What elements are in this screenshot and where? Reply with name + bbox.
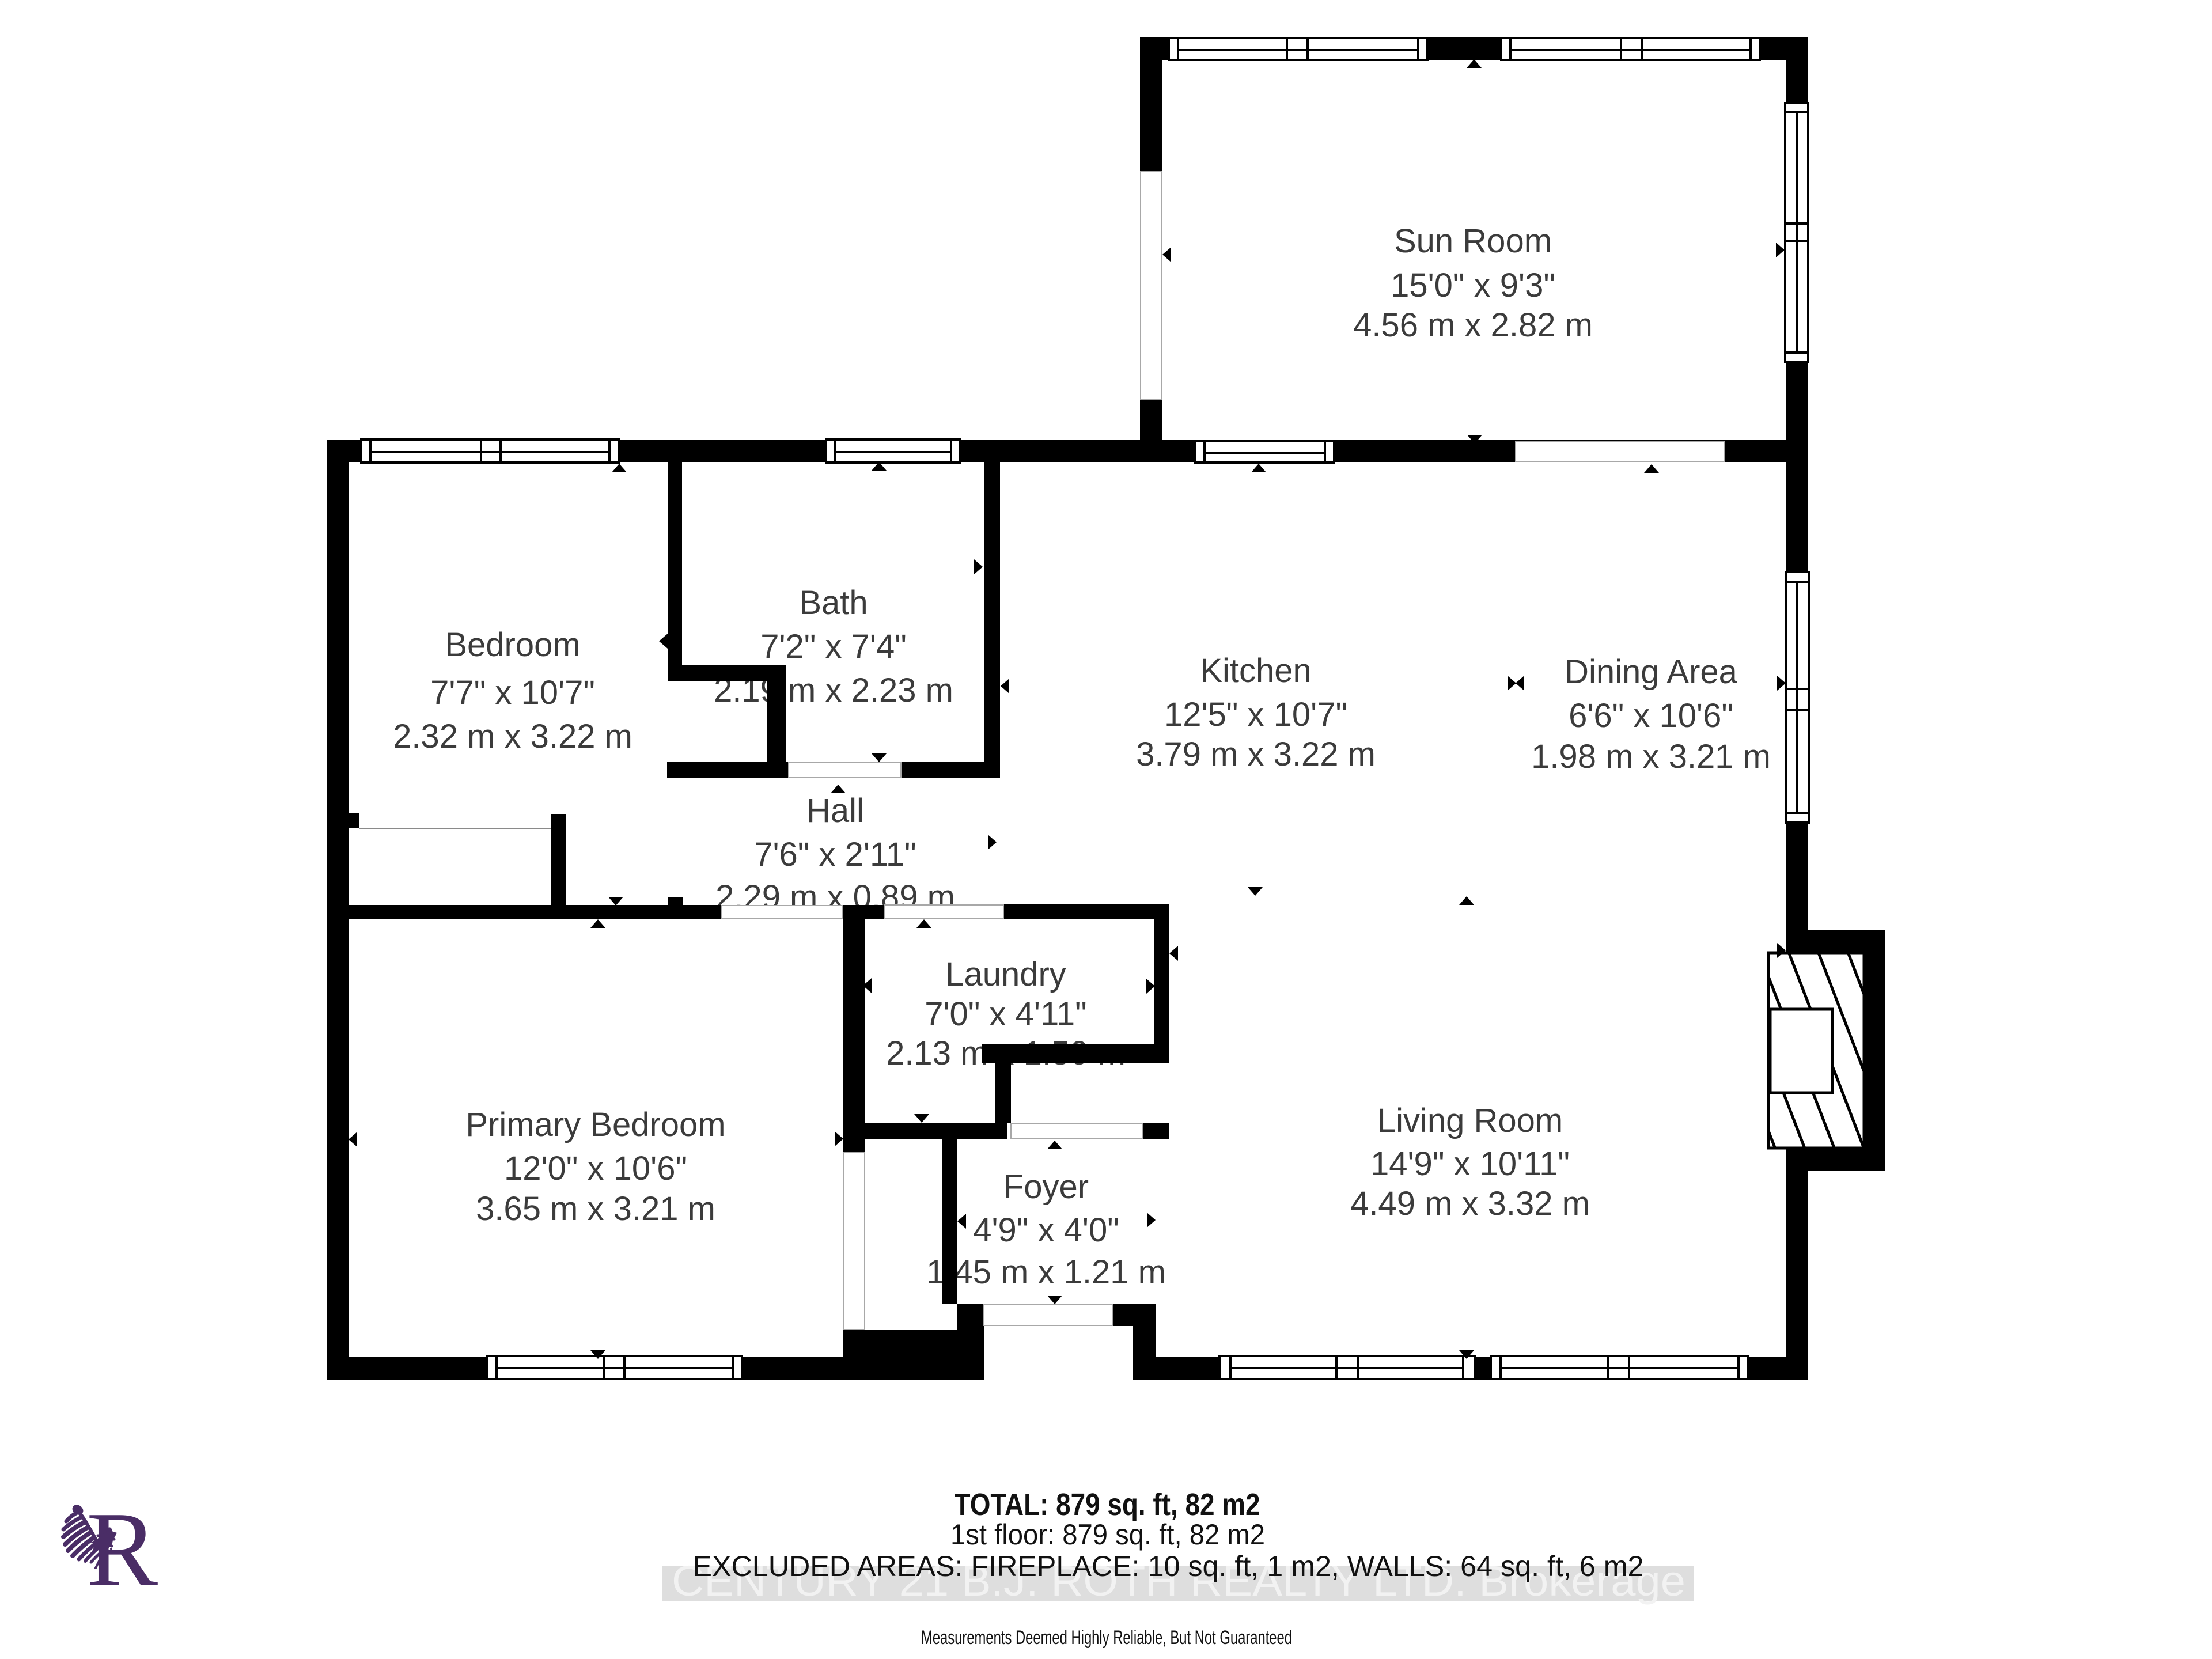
- svg-text:1.45 m x 1.21 m: 1.45 m x 1.21 m: [926, 1253, 1166, 1291]
- svg-text:12'5" x 10'7": 12'5" x 10'7": [1164, 696, 1347, 733]
- svg-text:TOTAL: 879 sq. ft, 82 m2: TOTAL: 879 sq. ft, 82 m2: [955, 1487, 1260, 1522]
- svg-text:7'7" x 10'7": 7'7" x 10'7": [430, 674, 595, 711]
- svg-text:7'2" x 7'4": 7'2" x 7'4": [760, 628, 907, 665]
- svg-text:Dining Area: Dining Area: [1565, 653, 1738, 691]
- svg-text:R: R: [86, 1490, 158, 1609]
- svg-text:Sun Room: Sun Room: [1394, 222, 1552, 260]
- svg-text:2.32 m x 3.22 m: 2.32 m x 3.22 m: [393, 718, 632, 755]
- svg-text:3.65 m x 3.21 m: 3.65 m x 3.21 m: [476, 1190, 715, 1228]
- svg-text:Living Room: Living Room: [1377, 1102, 1563, 1139]
- svg-text:1st floor: 879 sq. ft, 82 m2: 1st floor: 879 sq. ft, 82 m2: [950, 1518, 1265, 1551]
- svg-text:6'6" x 10'6": 6'6" x 10'6": [1569, 697, 1733, 734]
- svg-text:4.56 m x 2.82 m: 4.56 m x 2.82 m: [1353, 306, 1593, 344]
- svg-text:Laundry: Laundry: [945, 956, 1066, 993]
- svg-text:4.49 m x 3.32 m: 4.49 m x 3.32 m: [1350, 1185, 1590, 1222]
- svg-text:Bath: Bath: [799, 584, 868, 622]
- svg-text:7'0" x 4'11": 7'0" x 4'11": [925, 995, 1087, 1033]
- svg-text:15'0" x 9'3": 15'0" x 9'3": [1391, 267, 1555, 304]
- svg-text:7'6" x 2'11": 7'6" x 2'11": [754, 836, 916, 873]
- svg-text:Bedroom: Bedroom: [445, 626, 580, 664]
- svg-text:Primary Bedroom: Primary Bedroom: [465, 1106, 725, 1143]
- svg-text:EXCLUDED AREAS: FIREPLACE: 10: EXCLUDED AREAS: FIREPLACE: 10 sq. ft, 1 …: [693, 1550, 1644, 1582]
- svg-text:4'9" x 4'0": 4'9" x 4'0": [973, 1211, 1119, 1249]
- svg-text:Hall: Hall: [806, 792, 864, 829]
- svg-text:3.79 m x 3.22 m: 3.79 m x 3.22 m: [1136, 736, 1376, 773]
- svg-text:Kitchen: Kitchen: [1200, 652, 1311, 690]
- svg-text:12'0" x 10'6": 12'0" x 10'6": [504, 1150, 687, 1187]
- svg-text:14'9" x 10'11": 14'9" x 10'11": [1370, 1145, 1570, 1183]
- svg-text:1.98 m x 3.21 m: 1.98 m x 3.21 m: [1531, 738, 1771, 775]
- svg-text:Measurements Deemed Highly Rel: Measurements Deemed Highly Reliable, But…: [921, 1627, 1292, 1649]
- svg-text:Foyer: Foyer: [1003, 1168, 1089, 1206]
